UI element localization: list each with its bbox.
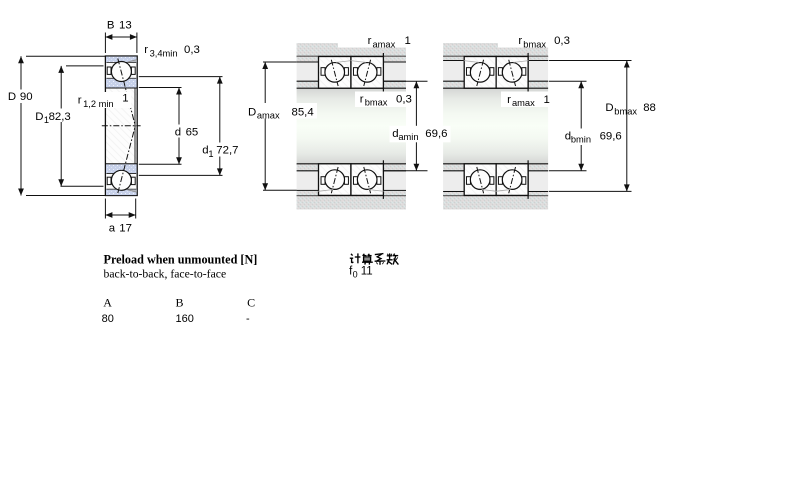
svg-text:r: r <box>507 94 511 106</box>
svg-text:C: C <box>247 296 255 310</box>
svg-text:a: a <box>109 222 116 234</box>
svg-text:D: D <box>605 102 613 114</box>
svg-text:back-to-back, face-to-face: back-to-back, face-to-face <box>104 268 227 281</box>
svg-text:amax: amax <box>373 39 396 49</box>
svg-text:B: B <box>107 20 115 32</box>
svg-text:bmin: bmin <box>571 135 591 145</box>
svg-text:1: 1 <box>405 35 411 47</box>
svg-text:bmax: bmax <box>523 39 546 49</box>
svg-text:1: 1 <box>544 94 550 106</box>
svg-text:90: 90 <box>20 91 33 103</box>
svg-text:85,4: 85,4 <box>292 106 314 118</box>
svg-text:-: - <box>246 313 250 325</box>
svg-text:65: 65 <box>186 126 199 138</box>
svg-text:1: 1 <box>208 149 213 159</box>
svg-text:72,7: 72,7 <box>216 145 238 157</box>
svg-text:A: A <box>103 296 112 310</box>
svg-text:bmax: bmax <box>365 98 388 108</box>
svg-text:r: r <box>368 35 372 47</box>
svg-text:r: r <box>144 44 148 56</box>
svg-text:d: d <box>175 126 181 138</box>
svg-text:Preload when unmounted [N]: Preload when unmounted [N] <box>104 252 258 266</box>
svg-text:amax: amax <box>512 98 535 108</box>
svg-text:amax: amax <box>257 111 280 121</box>
svg-text:D: D <box>248 106 256 118</box>
svg-text:amin: amin <box>398 132 418 142</box>
svg-text:69,6: 69,6 <box>425 128 447 140</box>
svg-text:r: r <box>518 35 522 47</box>
svg-text:1: 1 <box>122 93 128 105</box>
svg-text:0: 0 <box>353 270 358 280</box>
svg-text:13: 13 <box>119 20 132 32</box>
svg-text:0,3: 0,3 <box>554 35 570 47</box>
svg-text:17: 17 <box>119 222 132 234</box>
svg-text:bmax: bmax <box>614 106 637 116</box>
svg-text:D: D <box>35 111 43 123</box>
svg-text:r: r <box>360 93 364 105</box>
svg-text:82,3: 82,3 <box>49 111 71 123</box>
svg-text:r: r <box>78 95 82 107</box>
svg-text:69,6: 69,6 <box>600 130 622 142</box>
svg-text:0,3: 0,3 <box>184 44 200 56</box>
svg-text:11: 11 <box>361 266 373 278</box>
svg-text:D: D <box>8 91 16 103</box>
svg-text:80: 80 <box>102 313 114 325</box>
svg-text:B: B <box>176 296 184 310</box>
svg-text:0,3: 0,3 <box>396 93 412 105</box>
svg-text:3,4min: 3,4min <box>150 48 178 58</box>
svg-text:1,2 min: 1,2 min <box>83 99 114 109</box>
svg-text:160: 160 <box>176 313 194 325</box>
svg-text:88: 88 <box>643 102 656 114</box>
